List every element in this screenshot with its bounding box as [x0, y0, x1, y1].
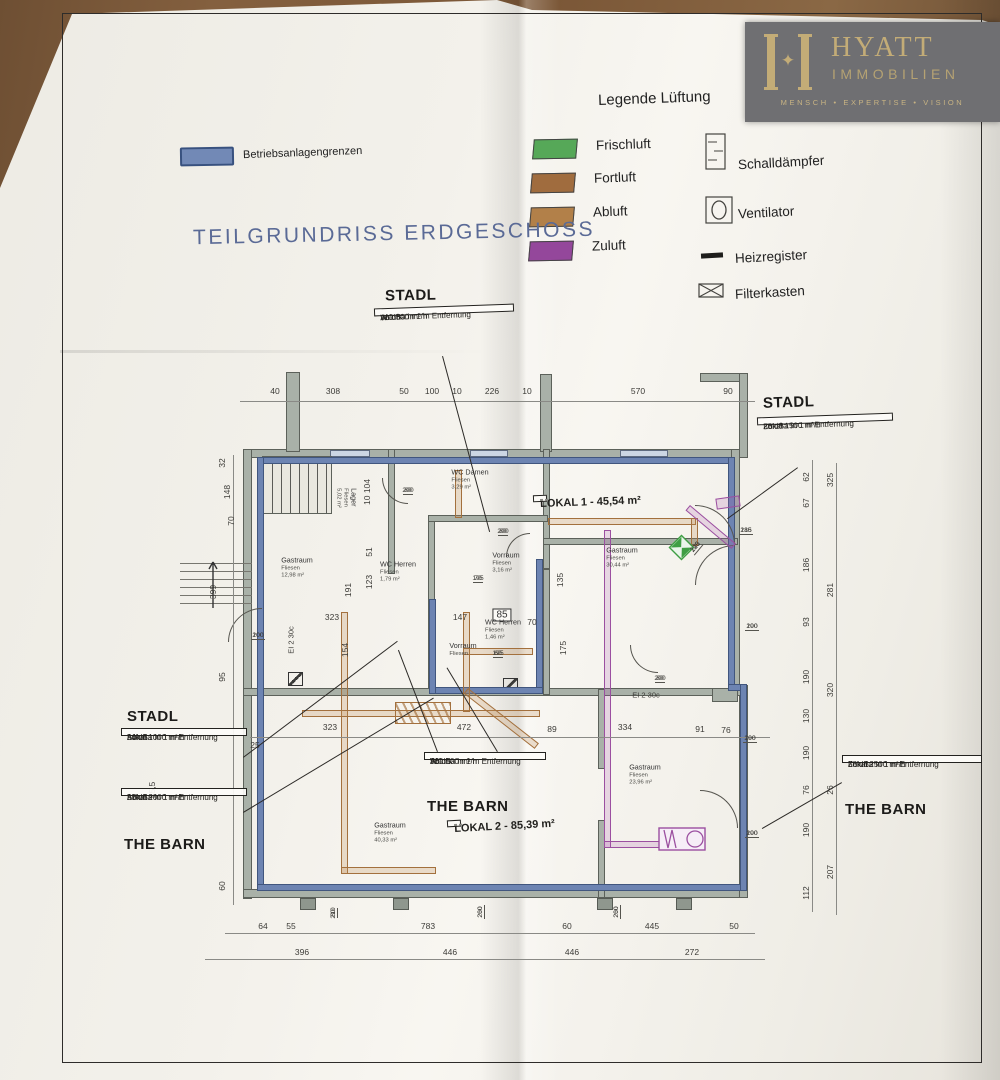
room-area: 30,44 m²: [606, 562, 638, 569]
room-area: 12,98 m²: [281, 572, 313, 579]
dimension-label: 89: [547, 724, 556, 734]
dimension-label: 191: [343, 583, 353, 597]
dimension-label: 123: [364, 575, 374, 589]
dimension-label: 272: [685, 947, 699, 957]
room-name: Gastraum: [281, 557, 313, 566]
callout-heading-barn-left: THE BARN: [124, 836, 206, 853]
dimension-label: 112: [801, 886, 811, 900]
dimension-label: 570: [631, 386, 645, 396]
scanned-floor-plan-photo: ✦ HYATT IMMOBILIEN MENSCH • EXPERTISE • …: [0, 0, 1000, 1080]
dimension-label: 190: [801, 670, 811, 684]
dimension-label: 334: [618, 722, 632, 732]
dimension-label: 135: [555, 573, 565, 587]
fire-rating-label: EI 2 30c: [287, 626, 296, 654]
dimension-label: 325: [825, 473, 835, 487]
callout-heading-stadl-top: STADL: [385, 287, 437, 305]
dimension-label: 323: [323, 722, 337, 732]
room-label: LagerFliesen5,02 m²: [335, 488, 358, 508]
room-name: Lager: [349, 488, 358, 508]
dimension-label: 76: [721, 725, 730, 735]
room-floor: Fliesen: [485, 627, 521, 634]
dimension-label: 308: [326, 386, 340, 396]
dimension-label: 323: [325, 612, 339, 622]
zone-lokal-2: LOKAL 2 - 85,39 m²: [447, 820, 461, 828]
room-floor: Fliesen: [629, 772, 661, 779]
dimension-label: 396: [295, 947, 309, 957]
room-name: Gastraum: [606, 547, 638, 556]
dimension-label: 50: [399, 386, 408, 396]
dimension-label: 130: [801, 709, 811, 723]
callout-box-barn-right: Zuluft:Lokal 2500 m³/h38 dBa in 1 m Entf…: [842, 755, 982, 763]
floor-plan: 4030850100102261057090253234728933491766…: [0, 0, 1000, 1080]
dimension-label: 446: [443, 947, 457, 957]
room-name: Vorraum: [449, 642, 476, 651]
room-area: 1,46 m²: [485, 634, 521, 641]
room-name: WC Herren: [485, 619, 521, 628]
room-label: GastraumFliesen12,98 m²: [281, 557, 313, 580]
dimension-label: 64: [258, 921, 267, 931]
room-name: Vorraum: [492, 552, 519, 561]
callout-heading-stadl-right: STADL: [763, 393, 815, 412]
room-label: GastraumFliesen40,33 m²: [374, 822, 406, 845]
room-area: 5,02 m²: [335, 488, 342, 508]
dimension-label: 70: [226, 516, 236, 525]
callout-heading-stadl-left: STADL: [127, 708, 178, 725]
room-label: WC HerrenFliesen1,79 m²: [380, 561, 416, 584]
room-label: VorraumFliesen3,16 m²: [492, 552, 519, 575]
dimension-label: 70: [527, 617, 536, 627]
dimension-label: 62: [801, 472, 811, 481]
fire-rating-label: EI 2 30c: [632, 691, 660, 700]
dimension-label: 10: [452, 386, 461, 396]
room-area: 23,96 m²: [629, 779, 661, 786]
callout-heading-barn-right: THE BARN: [845, 801, 927, 818]
dimension-label: 190: [801, 823, 811, 837]
dimension-label: 186: [801, 558, 811, 572]
room-area: 3,29 m²: [451, 484, 488, 491]
room-name: WC Damen: [451, 469, 488, 478]
dimension-label: 91: [695, 724, 704, 734]
room-label: GastraumFliesen30,44 m²: [606, 547, 638, 570]
dimension-label: 100: [425, 386, 439, 396]
dimension-label: 148: [222, 485, 232, 499]
dimension-label: 320: [825, 683, 835, 697]
room-floor: Fliesen: [281, 565, 313, 572]
dimension-label: 207: [825, 865, 835, 879]
dimension-label: 226: [485, 386, 499, 396]
dimension-label: 446: [565, 947, 579, 957]
dimension-label: 190: [801, 746, 811, 760]
dimension-label: 95: [217, 672, 227, 681]
room-floor: Fliesen: [492, 560, 519, 567]
callout-heading-barn-center: THE BARN: [427, 798, 509, 815]
dimension-label: 10 104: [362, 479, 372, 505]
dimension-label: 10: [522, 386, 531, 396]
dimension-label: 154: [340, 643, 350, 657]
room-floor: Fliesen: [342, 488, 349, 508]
room-floor: Fliesen: [449, 651, 476, 658]
dimension-label: 175: [558, 641, 568, 655]
room-area: 3,16 m²: [492, 567, 519, 574]
room-name: Gastraum: [629, 764, 661, 773]
dimension-label: 40: [270, 386, 279, 396]
room-label: WC HerrenFliesen1,46 m²: [485, 619, 521, 642]
illegible-subtext: [540, 499, 548, 501]
dimension-label: 472: [457, 722, 471, 732]
dimension-label: 147: [453, 612, 467, 622]
room-name: Gastraum: [374, 822, 406, 831]
room-label: GastraumFliesen23,96 m²: [629, 764, 661, 787]
dimension-label: 399: [208, 585, 218, 599]
dimension-label: 90: [723, 386, 732, 396]
callout-box-stadl-left: Abluft:Lokal 1000 m³/h34 dBa in 1 m Entf…: [121, 728, 247, 736]
dimension-label: 281: [825, 583, 835, 597]
dimension-label: 76: [801, 785, 811, 794]
dimension-label: 55: [286, 921, 295, 931]
room-label: VorraumFliesen: [449, 642, 476, 658]
room-label: WC DamenFliesen3,29 m²: [451, 469, 488, 492]
room-floor: Fliesen: [606, 555, 638, 562]
dimension-label: 51: [364, 547, 374, 556]
dimension-label: 32: [217, 458, 227, 467]
callout-box-barn-left: Abluft:Lokal 2000 m³/h37 dBa in 1 m Entf…: [121, 788, 247, 796]
callout-box-barn-center: Abluft:WC 500 m³/h36 dBa in 1 m Entfernu…: [424, 752, 546, 760]
dimension-label: 50: [729, 921, 738, 931]
dimension-label: 445: [645, 921, 659, 931]
room-name: WC Herren: [380, 561, 416, 570]
room-area: 40,33 m²: [374, 837, 406, 844]
room-floor: Fliesen: [451, 477, 488, 484]
dimension-label: 67: [801, 498, 811, 507]
dimension-label: 60: [217, 881, 227, 890]
room-area: 1,79 m²: [380, 576, 416, 583]
zone-lokal-1: LOKAL 1 - 45,54 m²: [533, 495, 547, 502]
room-floor: Fliesen: [374, 830, 406, 837]
dimension-label: 93: [801, 617, 811, 626]
dimension-label: 60: [562, 921, 571, 931]
dimension-label: 783: [421, 921, 435, 931]
room-floor: Fliesen: [380, 569, 416, 576]
